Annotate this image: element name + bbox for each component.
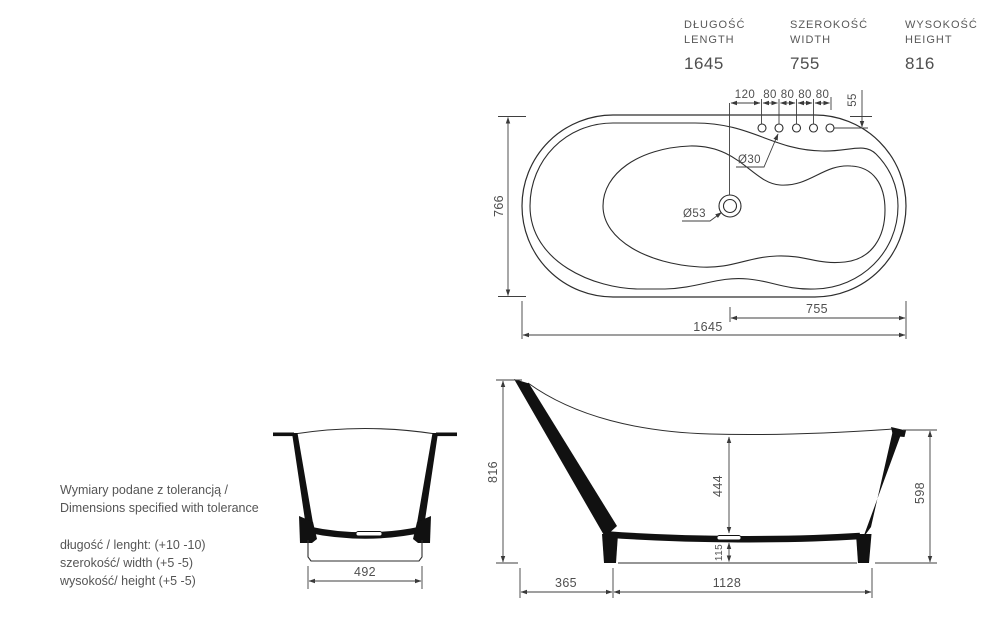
dim-label-1645: 1645 <box>693 320 722 334</box>
faucet-hole-icon <box>758 124 766 132</box>
front-left-wall <box>292 433 313 527</box>
faucet-hole-icon <box>810 124 818 132</box>
drain-inner-circle <box>724 200 737 213</box>
side-back-wall <box>514 379 617 537</box>
technical-drawing: 766 120 80 80 80 80 55 Ø30 Ø53 755 1645 <box>0 0 999 620</box>
front-right-flange <box>436 433 457 437</box>
side-front-rim-hook <box>891 427 906 437</box>
dim-label-492: 492 <box>354 565 376 579</box>
dim-label-80-1: 80 <box>763 89 777 101</box>
side-rim-profile <box>528 383 893 435</box>
tub-inner-rim-outline <box>530 123 898 289</box>
faucet-hole-icon <box>793 124 801 132</box>
dim-598 <box>875 430 937 563</box>
front-drain-slot <box>356 532 382 537</box>
dim-hole-spacing <box>730 97 832 195</box>
faucet-holes <box>758 124 834 132</box>
spec-sheet: DŁUGOŚĆ LENGTH 1645 SZEROKOŚĆ WIDTH 755 … <box>0 0 999 620</box>
side-view-dim-labels: 816 444 115 598 365 1128 <box>486 461 927 590</box>
front-left-foot <box>299 516 317 543</box>
front-right-foot <box>413 516 431 543</box>
drain-hole <box>719 195 741 217</box>
dim-label-80-2: 80 <box>781 89 795 101</box>
side-drain-slot <box>717 536 741 541</box>
dim-label-80-4: 80 <box>816 89 830 101</box>
dim-label-598: 598 <box>913 482 927 504</box>
dim-label-115: 115 <box>714 544 725 561</box>
dim-label-1128: 1128 <box>713 576 741 590</box>
faucet-hole-icon <box>826 124 834 132</box>
dim-label-755: 755 <box>806 302 828 316</box>
dim-label-816: 816 <box>486 461 500 483</box>
dim-label-faucet-dia: Ø30 <box>738 154 761 166</box>
front-view: 492 <box>273 429 457 590</box>
dim-label-80-3: 80 <box>798 89 812 101</box>
front-right-wall <box>417 433 438 527</box>
side-left-foot <box>602 534 618 563</box>
front-base-skirt <box>308 540 422 561</box>
faucet-hole-icon <box>775 124 783 132</box>
side-right-foot <box>856 534 872 563</box>
top-view <box>522 115 906 297</box>
dim-label-766: 766 <box>492 195 506 217</box>
dim-label-444: 444 <box>711 475 725 497</box>
dim-label-120: 120 <box>735 89 755 101</box>
dim-1128 <box>614 568 872 598</box>
front-left-flange <box>273 433 294 437</box>
side-front-wall <box>863 430 902 538</box>
dim-label-365: 365 <box>555 576 577 590</box>
drain-outer-circle <box>719 195 741 217</box>
tub-outer-outline <box>522 115 906 297</box>
dim-label-55: 55 <box>847 93 859 107</box>
side-view: 816 444 115 598 365 1128 <box>486 379 937 598</box>
front-rim-arc <box>294 429 436 435</box>
dim-label-drain-dia: Ø53 <box>683 208 706 220</box>
